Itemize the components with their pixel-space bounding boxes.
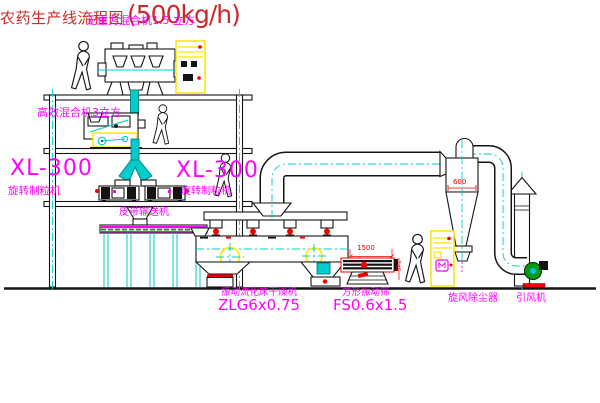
dim-sieve-height: 745: [394, 260, 400, 271]
person-figure: [406, 234, 425, 282]
vibrating-sieve: [341, 249, 399, 284]
dryer-inlet-fittings: [212, 228, 331, 235]
label-mixer-mid: 高效混合机3立方: [37, 107, 121, 118]
label-mixer-top: 无重力混合机1.5 立方: [86, 15, 195, 26]
label-cyclone-name: 旋风除尘器: [448, 294, 498, 304]
label-belt-conveyor: 皮带输送机: [119, 208, 169, 218]
label-fan-name: 引风机: [516, 294, 546, 304]
label-granulator-name-right: 旋转制粒机: [181, 187, 231, 197]
control-cabinet-cyclone: [431, 231, 454, 286]
induced-draft-fan: [523, 261, 548, 288]
label-sieve-model: FS0.6x1.5: [333, 298, 407, 313]
dim-cyclone-width: 600: [453, 179, 466, 186]
flow-diagram-page: 农药生产线流程图 (500kg/h) 无重力混合机1.5 立方 高效混合机3立方…: [0, 0, 600, 403]
label-granulator-model-left: XL-300: [10, 158, 93, 180]
label-dryer-model: ZLG6x0.75: [218, 298, 300, 313]
dim-sieve-length: 1500: [357, 245, 375, 252]
granulator-left: [95, 186, 139, 202]
label-granulator-model-right: XL-300: [176, 160, 259, 182]
fluid-bed-dryer: [196, 212, 348, 287]
person-figure: [153, 105, 168, 144]
dryer-exhaust-duct: [253, 152, 446, 219]
control-cabinet-top: [176, 41, 205, 93]
label-granulator-name-left: 旋转制粒机: [8, 186, 61, 197]
person-figure: [72, 41, 91, 89]
belt-conveyor: [100, 225, 209, 287]
diagram-canvas: [0, 0, 600, 403]
